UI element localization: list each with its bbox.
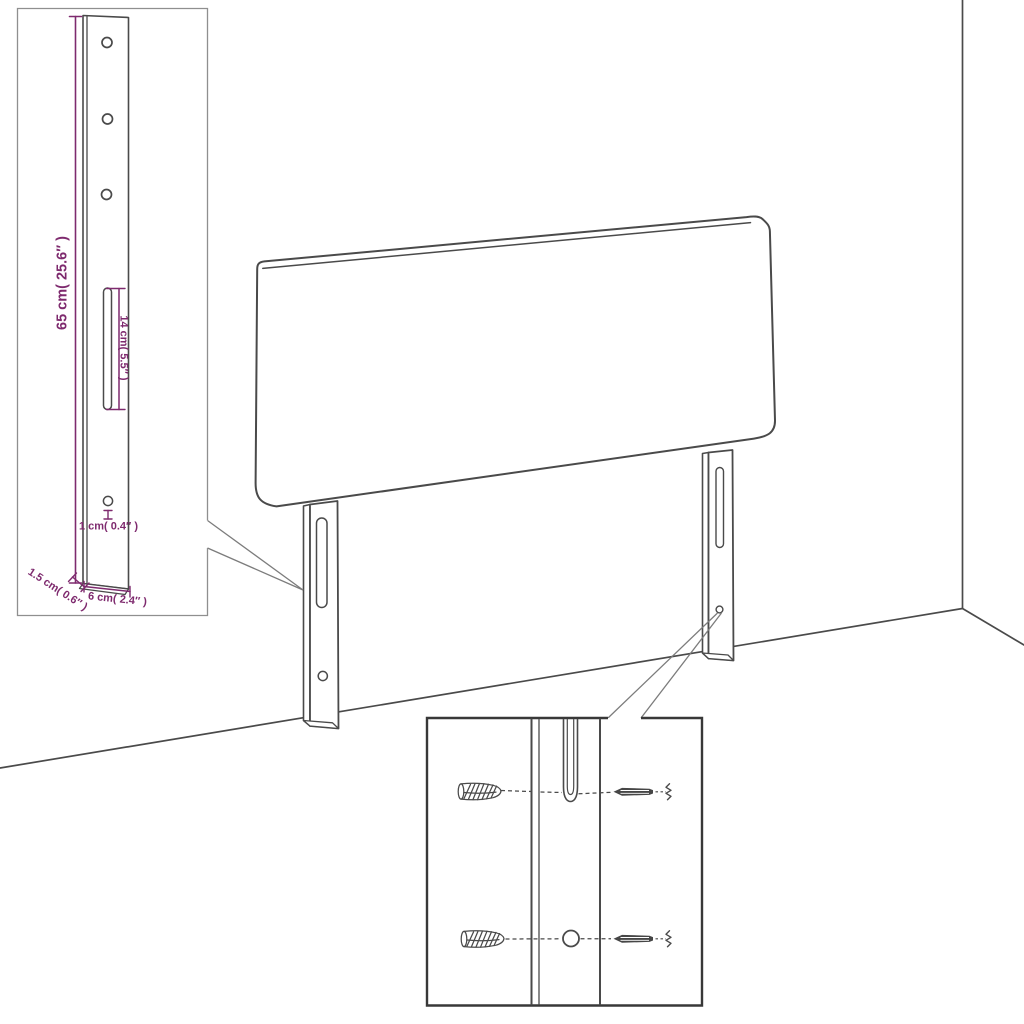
mounting-callout-line-left xyxy=(608,613,718,718)
strip-hole xyxy=(563,931,579,947)
left-leg-hole xyxy=(318,671,327,680)
bracket-detail-inset: 65 cm( 25.6″ ) 14 cm( 5.5″ ) 1 cm( 0.4″ … xyxy=(18,9,208,616)
mounting-inset-background xyxy=(427,718,702,1006)
headboard-panel-outline xyxy=(256,216,775,506)
bracket-callout-line-lower xyxy=(208,548,304,590)
bracket-callout-line-upper xyxy=(208,521,304,591)
bracket-hole-middle xyxy=(103,114,113,124)
right-leg-hole xyxy=(716,606,723,613)
headboard-right-leg xyxy=(703,450,734,661)
callout-lines xyxy=(208,521,722,719)
hole-dimension-label: 1 cm( 0.4″ ) xyxy=(79,520,138,532)
left-leg-slot xyxy=(317,518,328,608)
bracket-hole-bottom xyxy=(103,496,112,505)
height-dimension-label: 65 cm( 25.6″ ) xyxy=(55,236,71,330)
assembly-diagram-page: 65 cm( 25.6″ ) 14 cm( 5.5″ ) 1 cm( 0.4″ … xyxy=(0,0,1024,1024)
bracket-hole-lower xyxy=(102,190,112,200)
slot-dimension-label: 14 cm( 5.5″ ) xyxy=(117,315,129,381)
floor-edge-right xyxy=(963,609,1024,646)
mounting-callout-line-right xyxy=(641,613,722,718)
bracket-drawing xyxy=(80,16,129,595)
headboard-left-leg xyxy=(304,501,339,729)
headboard-panel xyxy=(256,216,775,506)
left-leg-side-face xyxy=(304,505,311,727)
mounting-detail-inset xyxy=(427,718,702,1006)
bracket-hole-top xyxy=(102,38,112,48)
bracket-slot xyxy=(104,288,112,410)
right-leg-slot xyxy=(716,468,724,548)
assembly-diagram: 65 cm( 25.6″ ) 14 cm( 5.5″ ) 1 cm( 0.4″ … xyxy=(0,0,1024,1024)
